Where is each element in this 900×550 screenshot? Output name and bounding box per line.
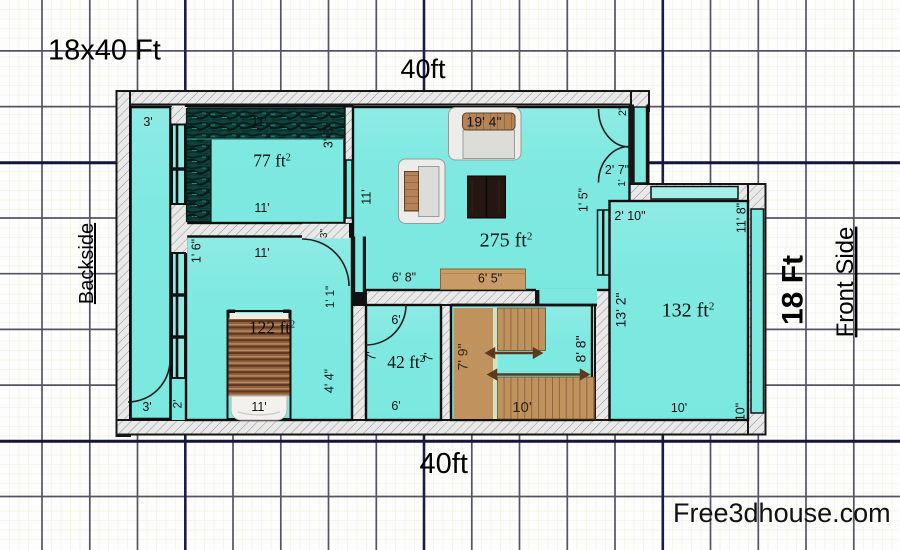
- svg-text:4' 4": 4' 4": [323, 369, 337, 393]
- svg-text:Front Side: Front Side: [832, 227, 859, 338]
- svg-text:3': 3': [142, 400, 151, 414]
- svg-text:7': 7': [365, 351, 379, 360]
- svg-text:132 ft2: 132 ft2: [662, 300, 715, 322]
- svg-text:40ft: 40ft: [401, 54, 447, 84]
- svg-text:Backside: Backside: [76, 223, 98, 304]
- svg-text:8' 8": 8' 8": [573, 335, 589, 362]
- svg-text:11': 11': [254, 201, 269, 215]
- svg-text:3': 3': [143, 115, 152, 129]
- svg-text:13' 2": 13' 2": [613, 293, 629, 328]
- svg-text:2' 10": 2' 10": [614, 209, 645, 223]
- svg-text:Free3dhouse.com: Free3dhouse.com: [673, 498, 891, 528]
- svg-text:18x40 Ft: 18x40 Ft: [48, 35, 161, 67]
- svg-text:3": 3": [319, 229, 330, 239]
- svg-text:6': 6': [391, 399, 400, 413]
- svg-text:1' 2": 1' 2": [184, 195, 198, 218]
- svg-text:1' 5": 1' 5": [577, 188, 591, 212]
- svg-text:40ft: 40ft: [420, 448, 468, 480]
- svg-text:3' 3": 3' 3": [322, 124, 336, 148]
- svg-text:10": 10": [734, 403, 748, 421]
- svg-text:1': 1': [617, 179, 628, 187]
- svg-text:6' 8": 6' 8": [392, 271, 416, 285]
- svg-text:7' 9": 7' 9": [455, 343, 471, 370]
- svg-text:2': 2': [171, 400, 185, 409]
- svg-text:2': 2': [617, 108, 629, 116]
- svg-text:2' 7": 2' 7": [605, 163, 629, 177]
- svg-text:6': 6': [391, 313, 400, 327]
- svg-text:11': 11': [251, 400, 266, 414]
- svg-text:10': 10': [512, 399, 532, 416]
- svg-text:42 ft2: 42 ft2: [387, 352, 425, 372]
- svg-text:18 Ft: 18 Ft: [777, 255, 810, 325]
- svg-text:11' 8": 11' 8": [735, 203, 749, 233]
- svg-text:1' 6": 1' 6": [190, 239, 204, 263]
- svg-text:1' 1": 1' 1": [325, 286, 337, 308]
- svg-text:10': 10': [671, 401, 687, 415]
- svg-text:11': 11': [254, 246, 269, 260]
- svg-text:6' 5": 6' 5": [478, 272, 502, 286]
- svg-text:122 ft2: 122 ft2: [249, 318, 295, 338]
- svg-text:275 ft2: 275 ft2: [480, 230, 533, 252]
- svg-text:77 ft2: 77 ft2: [253, 151, 291, 171]
- svg-text:11': 11': [251, 115, 266, 129]
- svg-text:11': 11': [360, 189, 374, 204]
- svg-text:19' 4": 19' 4": [467, 114, 502, 130]
